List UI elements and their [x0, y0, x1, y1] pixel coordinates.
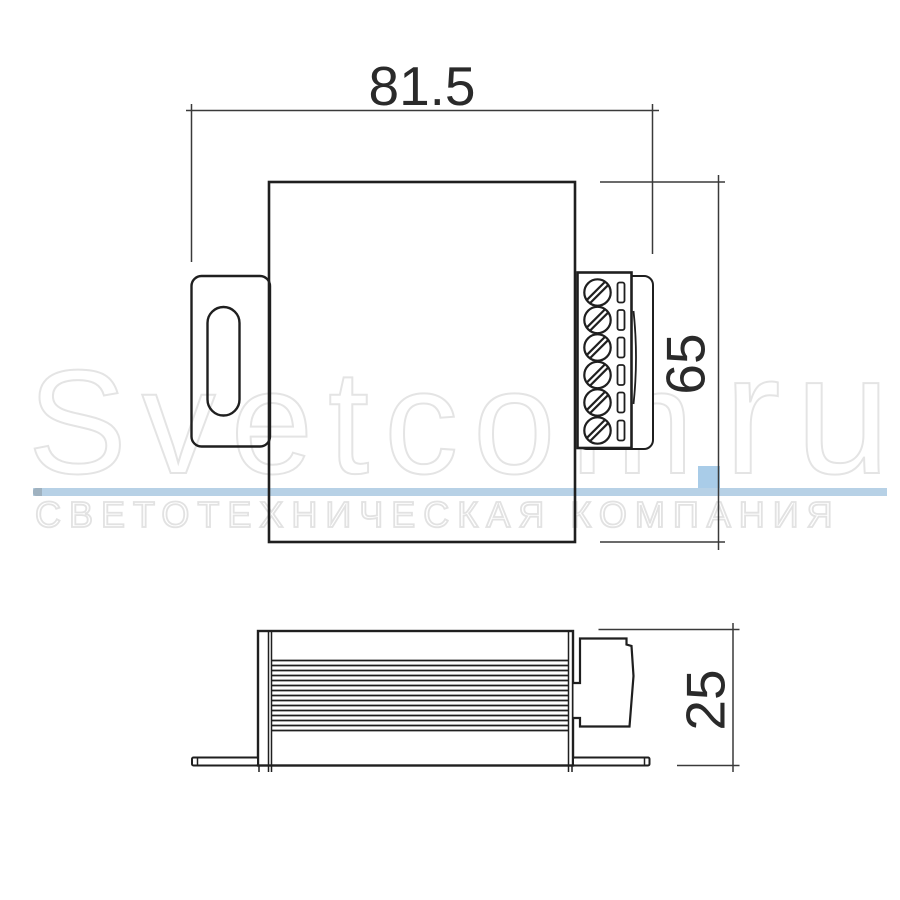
top-view — [192, 182, 654, 542]
dimensional-drawing-page: Svetcom ru СВЕТОТЕХНИЧЕСКАЯ КОМПАНИЯ — [0, 0, 900, 900]
mounting-slot-outline — [208, 307, 240, 416]
dimension-depth-label: 25 — [679, 669, 734, 730]
body-outline-top-view — [269, 182, 575, 542]
side-view — [192, 631, 650, 772]
flange-tab-right — [573, 758, 650, 766]
dimension-height-label: 65 — [659, 333, 714, 394]
dimension-width-label: 81.5 — [368, 59, 475, 114]
terminal-block-side-profile — [574, 639, 634, 727]
flange-tab-left — [192, 758, 258, 766]
drawing-linework — [0, 0, 900, 900]
heatsink-fins — [272, 661, 569, 731]
mounting-flange-outline — [192, 276, 271, 447]
body-outline-side-view — [258, 631, 573, 766]
